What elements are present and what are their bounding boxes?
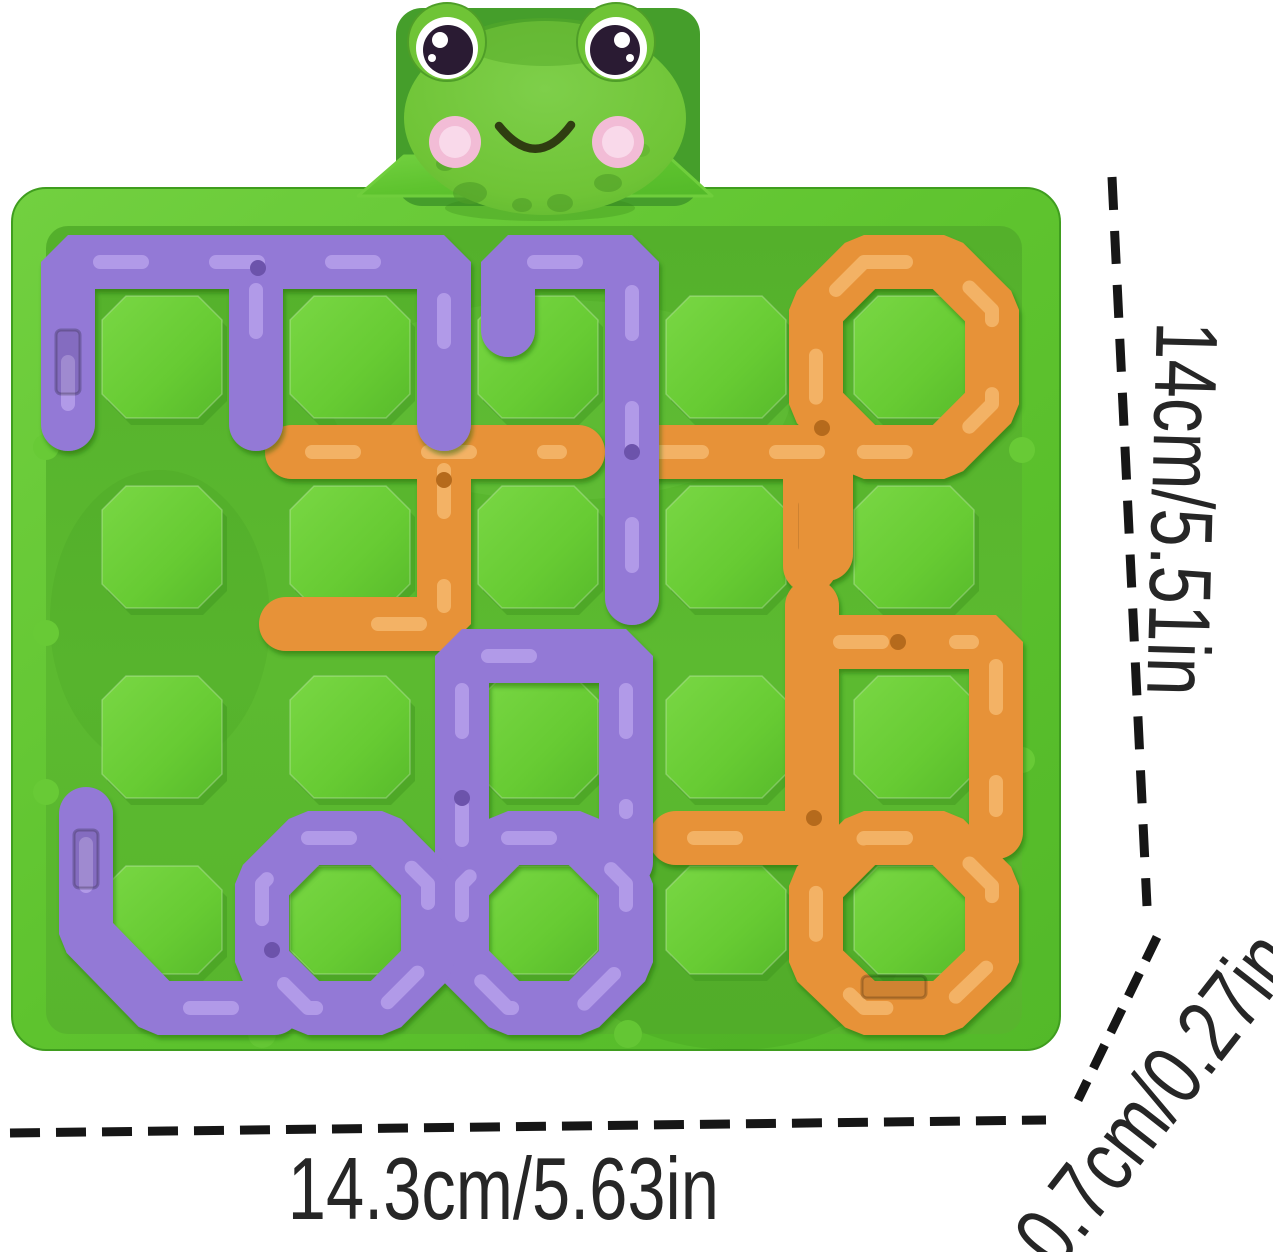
board-cell-bump	[102, 486, 222, 608]
edge-notch	[614, 1020, 642, 1048]
board-cell-bump	[666, 486, 786, 608]
piece-slot	[74, 830, 98, 888]
board-cell-bump	[666, 676, 786, 798]
frog-left-eye	[408, 3, 486, 81]
board-cell-bump	[290, 296, 410, 418]
dimension-width-line	[10, 1120, 1046, 1133]
puzzle-board-illustration	[0, 0, 1273, 1252]
board-cell-bump	[666, 296, 786, 418]
frog-left-cheek	[429, 116, 481, 168]
board-cell-bump	[854, 486, 974, 608]
board-cell-bump	[102, 296, 222, 418]
piece-slot	[862, 976, 926, 998]
board-cell-bump	[854, 296, 974, 418]
width-dimension-text: 14.3cm/5.63in	[287, 1138, 718, 1240]
frog-right-eye	[577, 3, 655, 81]
frog-right-cheek	[592, 116, 644, 168]
product-photo: 14.3cm/5.63in 14cm/5.51in 0.7cm/0.27in	[0, 0, 1273, 1252]
board-cell-bump	[478, 486, 598, 608]
edge-tab	[1009, 437, 1035, 463]
board-cell-bump	[854, 676, 974, 798]
board-cell-bump	[290, 676, 410, 798]
board-cell-bump	[478, 676, 598, 798]
height-dimension-label: 14cm/5.51in	[1124, 208, 1240, 810]
edge-tab	[33, 620, 59, 646]
edge-tab	[33, 779, 59, 805]
width-dimension-label: 14.3cm/5.63in	[103, 1138, 903, 1240]
board-cell-bump	[102, 676, 222, 798]
height-dimension-text: 14cm/5.51in	[1127, 321, 1237, 697]
board-cell-bump	[666, 866, 786, 974]
board-cell-bump	[290, 486, 410, 608]
piece-slot	[56, 330, 80, 394]
